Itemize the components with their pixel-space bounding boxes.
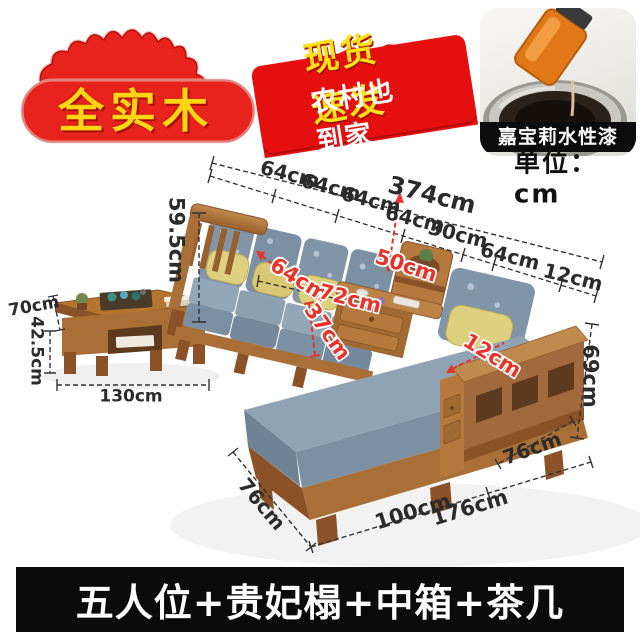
product-image: 全实木 现货速发 农村也到家 嘉宝莉水性漆 单位：cm 64cm xyxy=(0,0,640,640)
solid-wood-badge-label: 全实木 xyxy=(58,75,214,141)
banner-line2: 农村也到家 xyxy=(307,65,426,159)
footer-title: 五人位+贵妃榻+中箱+茶几 xyxy=(76,572,565,627)
dim-table-length: 130cm xyxy=(99,389,162,406)
paint-photo: 嘉宝莉水性漆 xyxy=(480,8,636,156)
dim-left-height: 59.5cm xyxy=(166,197,187,283)
unit-label: 单位：cm xyxy=(514,143,598,210)
dim-right-height: 69cm xyxy=(580,344,601,408)
footer-bar: 五人位+贵妃榻+中箱+茶几 xyxy=(16,567,624,632)
dim-table-base-height: 42.5cm xyxy=(28,316,45,386)
